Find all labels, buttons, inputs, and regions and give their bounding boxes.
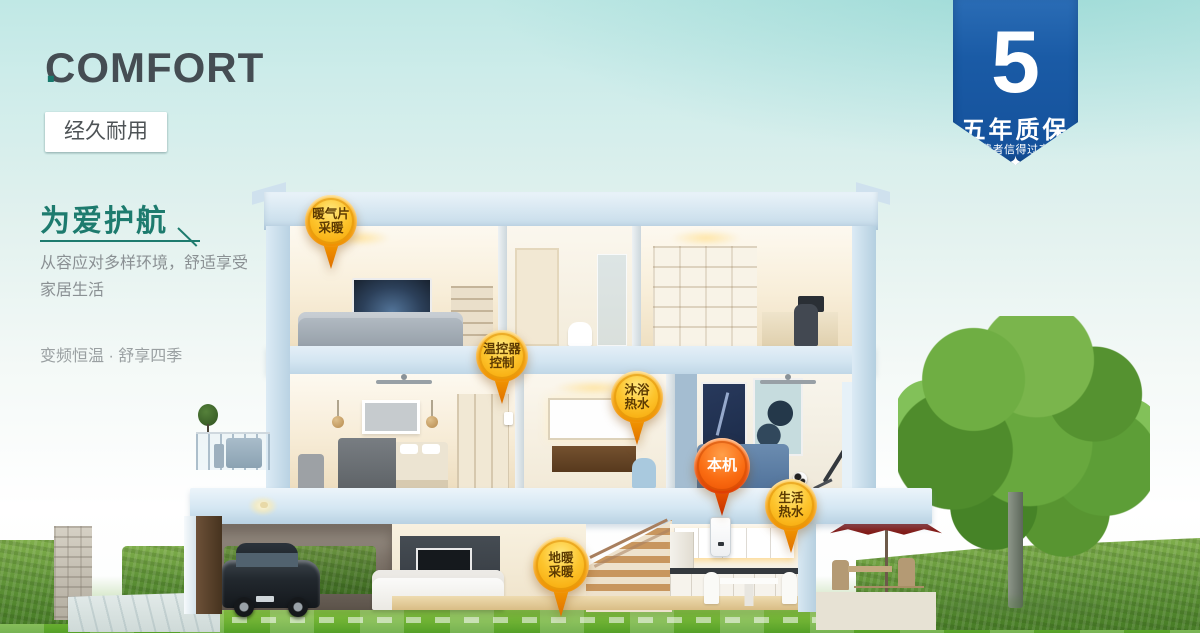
ceiling-fan xyxy=(760,380,816,384)
exterior-wall-right xyxy=(852,226,876,492)
wall-divider xyxy=(632,226,641,346)
pin-label: 暖气片 采暖 xyxy=(312,207,350,235)
pin-label: 温控器 控制 xyxy=(483,342,521,370)
pillow xyxy=(400,444,418,454)
vanity-cabinet xyxy=(552,446,636,472)
floor-slab-middle xyxy=(266,346,876,374)
patio-chair xyxy=(832,560,849,590)
tree-shadow xyxy=(938,598,1102,614)
toilet xyxy=(568,322,592,346)
pendant-lamp xyxy=(426,416,438,428)
tree-trunk xyxy=(1008,492,1023,608)
wall-thermostat xyxy=(504,412,513,425)
headline-tagline: 变频恒温 · 舒享四季 xyxy=(40,342,182,366)
banner-scene: 暖气片 采暖 温控器 控制 沐浴 热水 本机 生活 热水 xyxy=(0,0,1200,633)
patio-floor xyxy=(816,592,936,630)
floor-slab-lower xyxy=(190,488,932,524)
pin-face: 地暖 采暖 xyxy=(536,540,586,590)
pin-head: 暖气片 采暖 xyxy=(305,195,357,247)
headline-title: 为爱护航 xyxy=(40,196,168,240)
dining-chair xyxy=(704,572,719,604)
boiler-unit xyxy=(710,517,731,557)
patio-chair xyxy=(898,558,915,588)
brand-name: COMFORT xyxy=(45,44,264,92)
ceiling-fan xyxy=(376,380,432,384)
pin-label: 生活 热水 xyxy=(778,491,803,519)
kids-window xyxy=(842,382,852,488)
room-study xyxy=(641,226,852,346)
car-wheel xyxy=(234,597,254,617)
black-car xyxy=(222,560,320,608)
room-bathroom-upper xyxy=(507,226,632,346)
dining-chair xyxy=(782,572,797,604)
bathroom-door xyxy=(515,248,559,346)
wardrobe xyxy=(457,394,509,488)
wall-divider xyxy=(498,226,507,346)
terrace-plant xyxy=(198,404,218,426)
warranty-years-number: 5 xyxy=(953,18,1078,106)
bookshelf xyxy=(653,246,757,346)
car-cabin xyxy=(236,543,298,567)
pin-label: 本机 xyxy=(707,459,737,473)
pin-face: 生活 热水 xyxy=(768,482,814,528)
terrace-furniture xyxy=(226,438,262,468)
car-license-plate xyxy=(256,596,274,602)
tree-canopy xyxy=(898,316,1150,560)
picture-frame xyxy=(362,400,420,434)
headline-description: 从容应对多样环境，舒适享受 家居生活 xyxy=(40,250,300,304)
wall-divider xyxy=(666,374,675,488)
pin-face: 暖气片 采暖 xyxy=(308,198,354,244)
pin-head: 地暖 采暖 xyxy=(533,537,589,593)
pin-head: 本机 xyxy=(694,438,750,494)
office-chair xyxy=(794,304,818,346)
pin-head: 沐浴 热水 xyxy=(611,371,663,423)
pillow xyxy=(422,444,440,454)
pin-label: 沐浴 热水 xyxy=(624,383,649,411)
bed xyxy=(338,442,448,488)
pin-head: 生活 热水 xyxy=(765,479,817,531)
pin-head: 温控器 控制 xyxy=(476,330,528,382)
pin-face: 温控器 控制 xyxy=(479,333,525,379)
dining-table xyxy=(720,578,778,606)
bed-blanket xyxy=(338,438,396,488)
feature-tag-durable: 经久耐用 xyxy=(45,112,167,152)
room-bedroom xyxy=(290,374,515,488)
brand-dot: . xyxy=(45,44,58,92)
toilet-blue xyxy=(632,458,656,488)
pin-face: 沐浴 热水 xyxy=(614,374,660,420)
car-wheel xyxy=(288,597,308,617)
carport-pillar-wood xyxy=(196,516,222,614)
exterior-wall-right-ground xyxy=(798,524,816,612)
bedroom-chair xyxy=(298,454,324,488)
pin-face: 本机 xyxy=(697,441,747,491)
patio-table xyxy=(848,566,892,572)
wall-lamp xyxy=(260,502,268,508)
gray-sofa xyxy=(298,312,463,346)
pendant-lamp xyxy=(332,416,344,428)
headline-underline xyxy=(40,240,200,242)
ceiling-light-glow xyxy=(671,230,741,246)
pin-label: 地暖 采暖 xyxy=(548,551,573,579)
shower-glass xyxy=(597,254,627,346)
wall-divider xyxy=(515,374,524,488)
